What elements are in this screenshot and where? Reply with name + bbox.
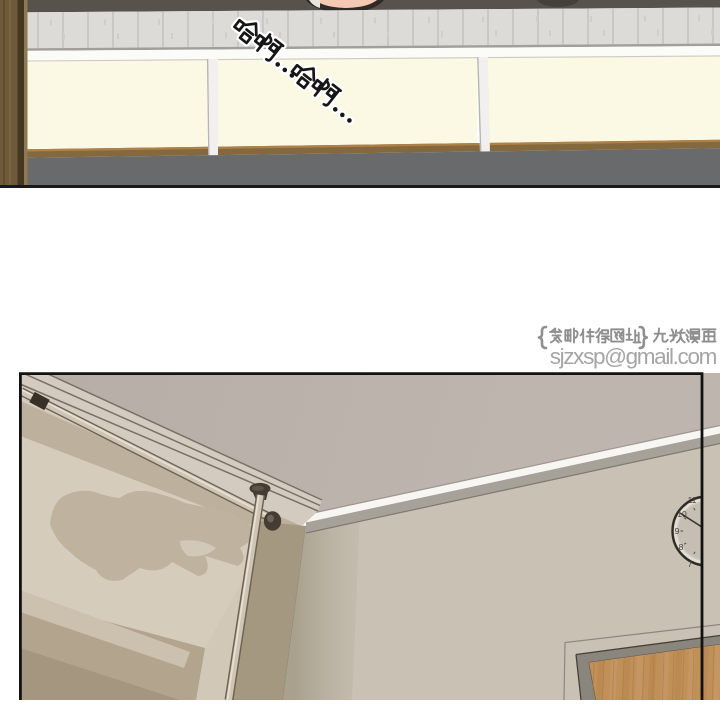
svg-text:9: 9 (675, 526, 680, 536)
svg-text:7: 7 (688, 559, 693, 569)
svg-text:sjzxsp@gmail.com: sjzxsp@gmail.com (550, 344, 717, 369)
svg-text:8: 8 (679, 542, 684, 552)
svg-text:11: 11 (688, 495, 697, 505)
